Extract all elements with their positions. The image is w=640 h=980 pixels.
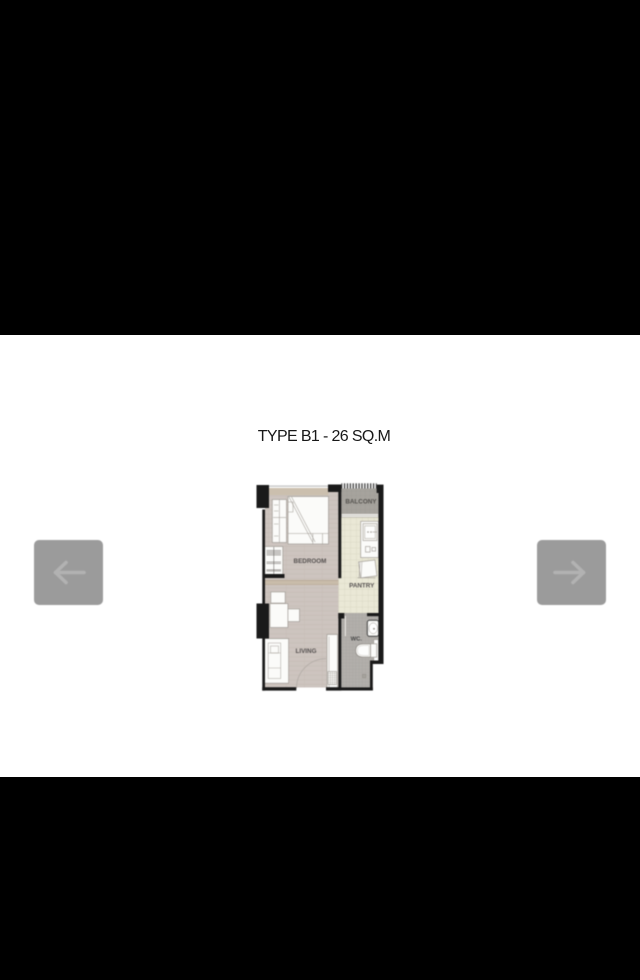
svg-text:BALCONY: BALCONY	[345, 498, 377, 505]
svg-text:WC.: WC.	[351, 637, 363, 643]
svg-text:LIVING: LIVING	[296, 648, 317, 655]
svg-text:PANTRY: PANTRY	[349, 582, 375, 589]
svg-text:BEDROOM: BEDROOM	[294, 558, 327, 565]
